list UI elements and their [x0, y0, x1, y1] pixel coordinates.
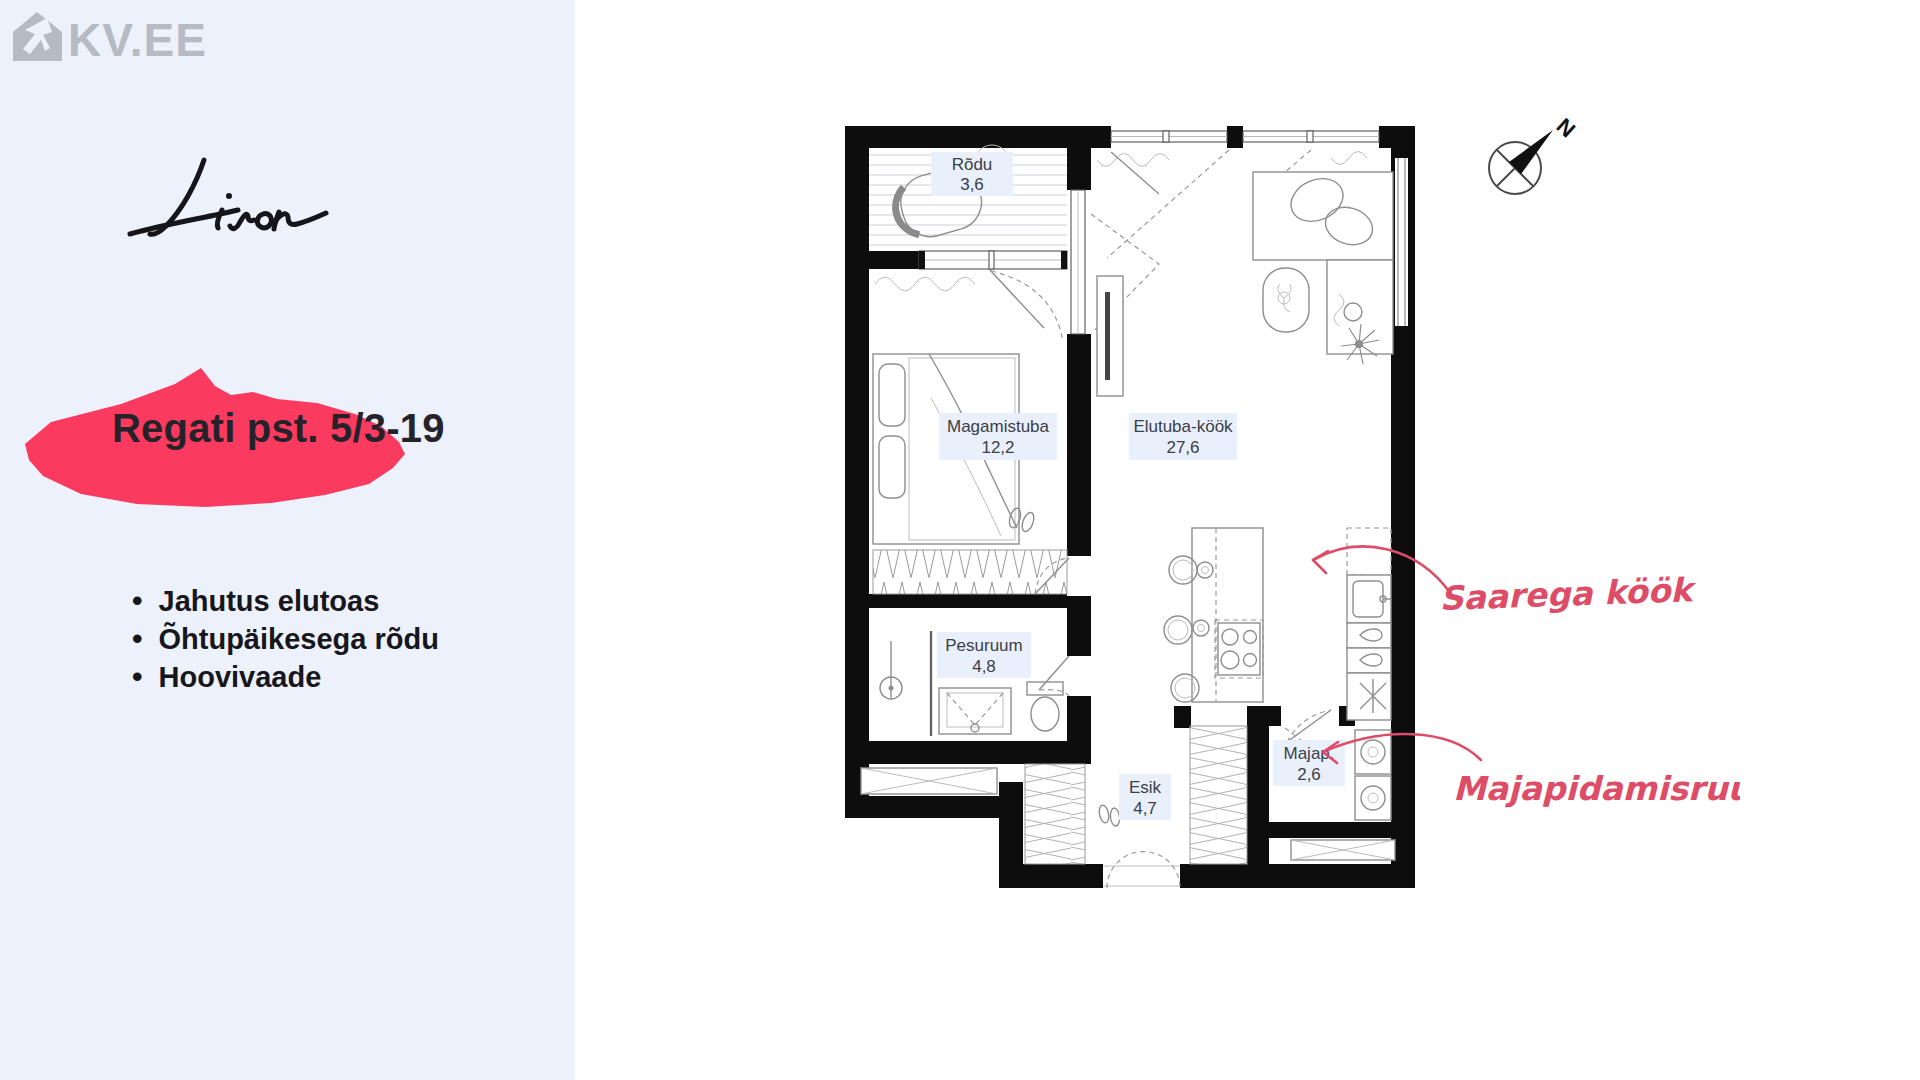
kvee-logo: KV.EE — [10, 8, 220, 68]
room-area: 27,6 — [1166, 438, 1199, 457]
feature-text: Jahutus elutoas — [159, 582, 380, 620]
kitchen-island — [1192, 528, 1263, 702]
pouf-table — [1263, 268, 1309, 332]
washer-stack — [1355, 730, 1391, 820]
feature-item: Hoovivaade — [132, 658, 439, 696]
room-label-magamistuba: Magamistuba 12,2 — [939, 413, 1057, 460]
feature-text: Hoovivaade — [159, 658, 322, 696]
room-name: Pesuruum — [945, 636, 1022, 655]
annotation-text-utility: Majapidamisruum — [1453, 769, 1740, 808]
compass-north-label: N — [1552, 113, 1581, 142]
feature-item: Jahutus elutoas — [132, 582, 439, 620]
room-area: 3,6 — [960, 175, 984, 194]
entry-door-arc — [1107, 852, 1180, 888]
closet-box — [861, 768, 997, 794]
slippers-icon — [1098, 804, 1121, 826]
room-label-pesuruum: Pesuruum 4,8 — [937, 632, 1031, 678]
wardrobe-hatch-right — [1190, 726, 1247, 864]
feature-text: Õhtupäikesega rõdu — [159, 620, 439, 658]
room-area: 4,8 — [972, 657, 996, 676]
room-name: Elutuba-köök — [1133, 417, 1233, 436]
room-area: 2,6 — [1297, 765, 1321, 784]
balcony-door-leaf — [989, 269, 1044, 328]
closet-box — [1291, 840, 1395, 860]
listing-address: Regati pst. 5/3-19 — [112, 406, 572, 451]
room-name: Magamistuba — [947, 417, 1050, 436]
toilet — [1027, 682, 1063, 731]
curtain — [1097, 154, 1169, 167]
room-name: Esik — [1129, 778, 1162, 797]
room-label-esik: Esik 4,7 — [1119, 774, 1171, 820]
curtain — [1331, 152, 1367, 165]
compass-icon: N — [1489, 113, 1580, 194]
room-label-rodu: Rõdu 3,6 — [931, 152, 1013, 196]
feature-list: Jahutus elutoas Õhtupäikesega rõdu Hoovi… — [132, 582, 439, 696]
developer-name: Liven — [0, 0, 1, 1]
room-area: 4,7 — [1133, 799, 1157, 818]
kitchen-counter — [1347, 528, 1391, 720]
liven-signature — [126, 156, 331, 244]
floorplan: Rõdu 3,6 Magamistuba 12,2 Elutuba-köök 2… — [839, 96, 1740, 908]
annotation-text-kitchen: Saarega köök — [1439, 570, 1698, 618]
sink — [939, 688, 1011, 734]
curtain — [875, 277, 975, 291]
portal-logo-text: KV.EE — [68, 14, 207, 66]
room-name: Rõdu — [952, 155, 993, 174]
sidebar: KV.EE Liven Regati pst. 5/3-19 Jahutus e… — [0, 0, 575, 1080]
feature-item: Õhtupäikesega rõdu — [132, 620, 439, 658]
house-icon — [13, 12, 62, 61]
rug — [873, 550, 1067, 594]
room-label-elutuba: Elutuba-köök 27,6 — [1129, 413, 1237, 460]
room-area: 12,2 — [981, 438, 1014, 457]
wardrobe-hatch-left — [1025, 764, 1085, 864]
tv-bench — [1097, 276, 1123, 396]
